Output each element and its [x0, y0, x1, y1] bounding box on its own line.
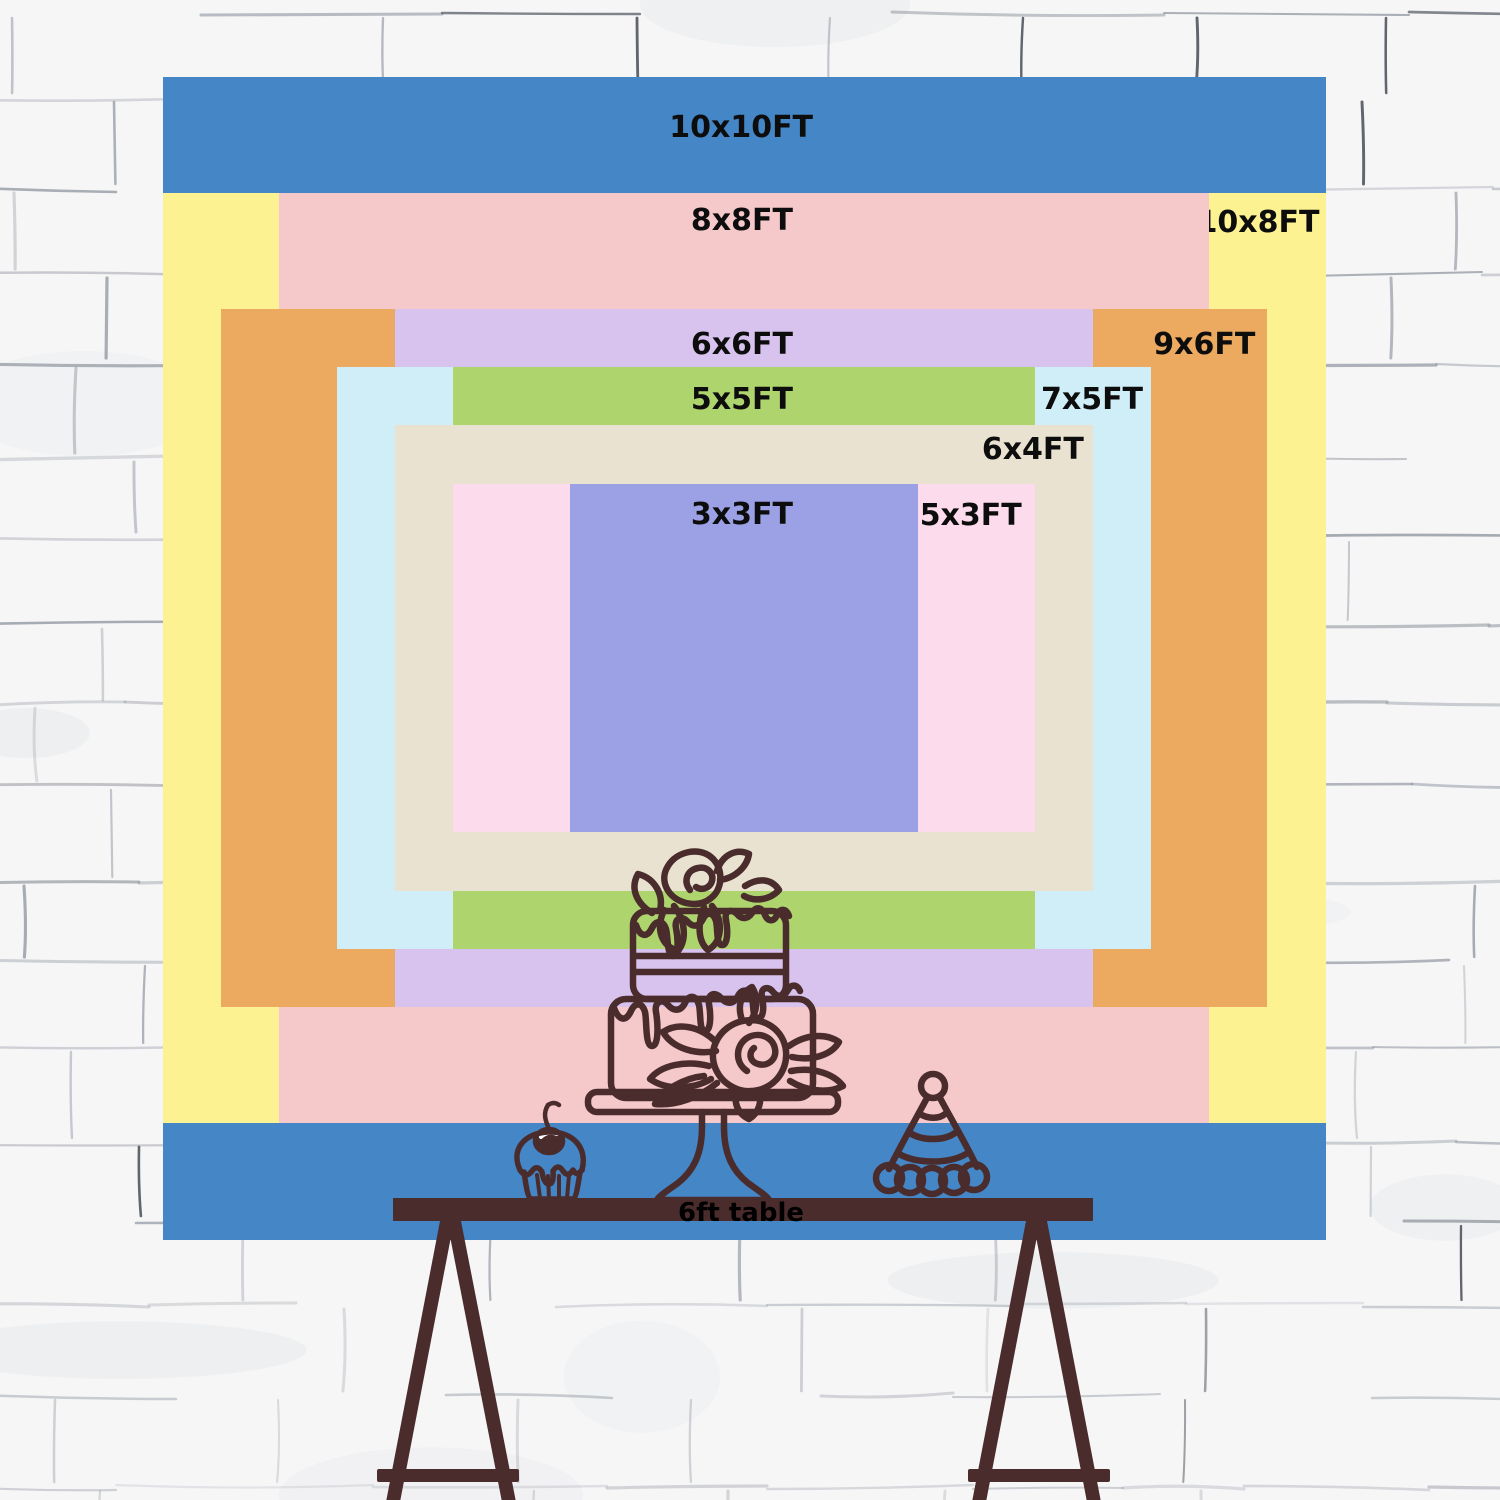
table-size-label: 6ft table	[616, 1198, 866, 1228]
hat-trim	[876, 1164, 987, 1194]
trestle-legs	[377, 1221, 1110, 1500]
cupcake	[517, 1103, 583, 1199]
cherry-stem	[545, 1105, 549, 1129]
cake-stand	[588, 1092, 838, 1200]
rose-topper	[634, 851, 779, 951]
backdrop-size-chart: 10x10FT10x8FT8x8FT9x6FT6x6FT7x5FT5x5FT6x…	[0, 0, 1500, 1500]
table	[377, 1198, 1110, 1500]
party-hat	[876, 1074, 987, 1194]
hat-pompom	[921, 1074, 945, 1098]
cake-table-illustration	[0, 0, 1500, 1500]
